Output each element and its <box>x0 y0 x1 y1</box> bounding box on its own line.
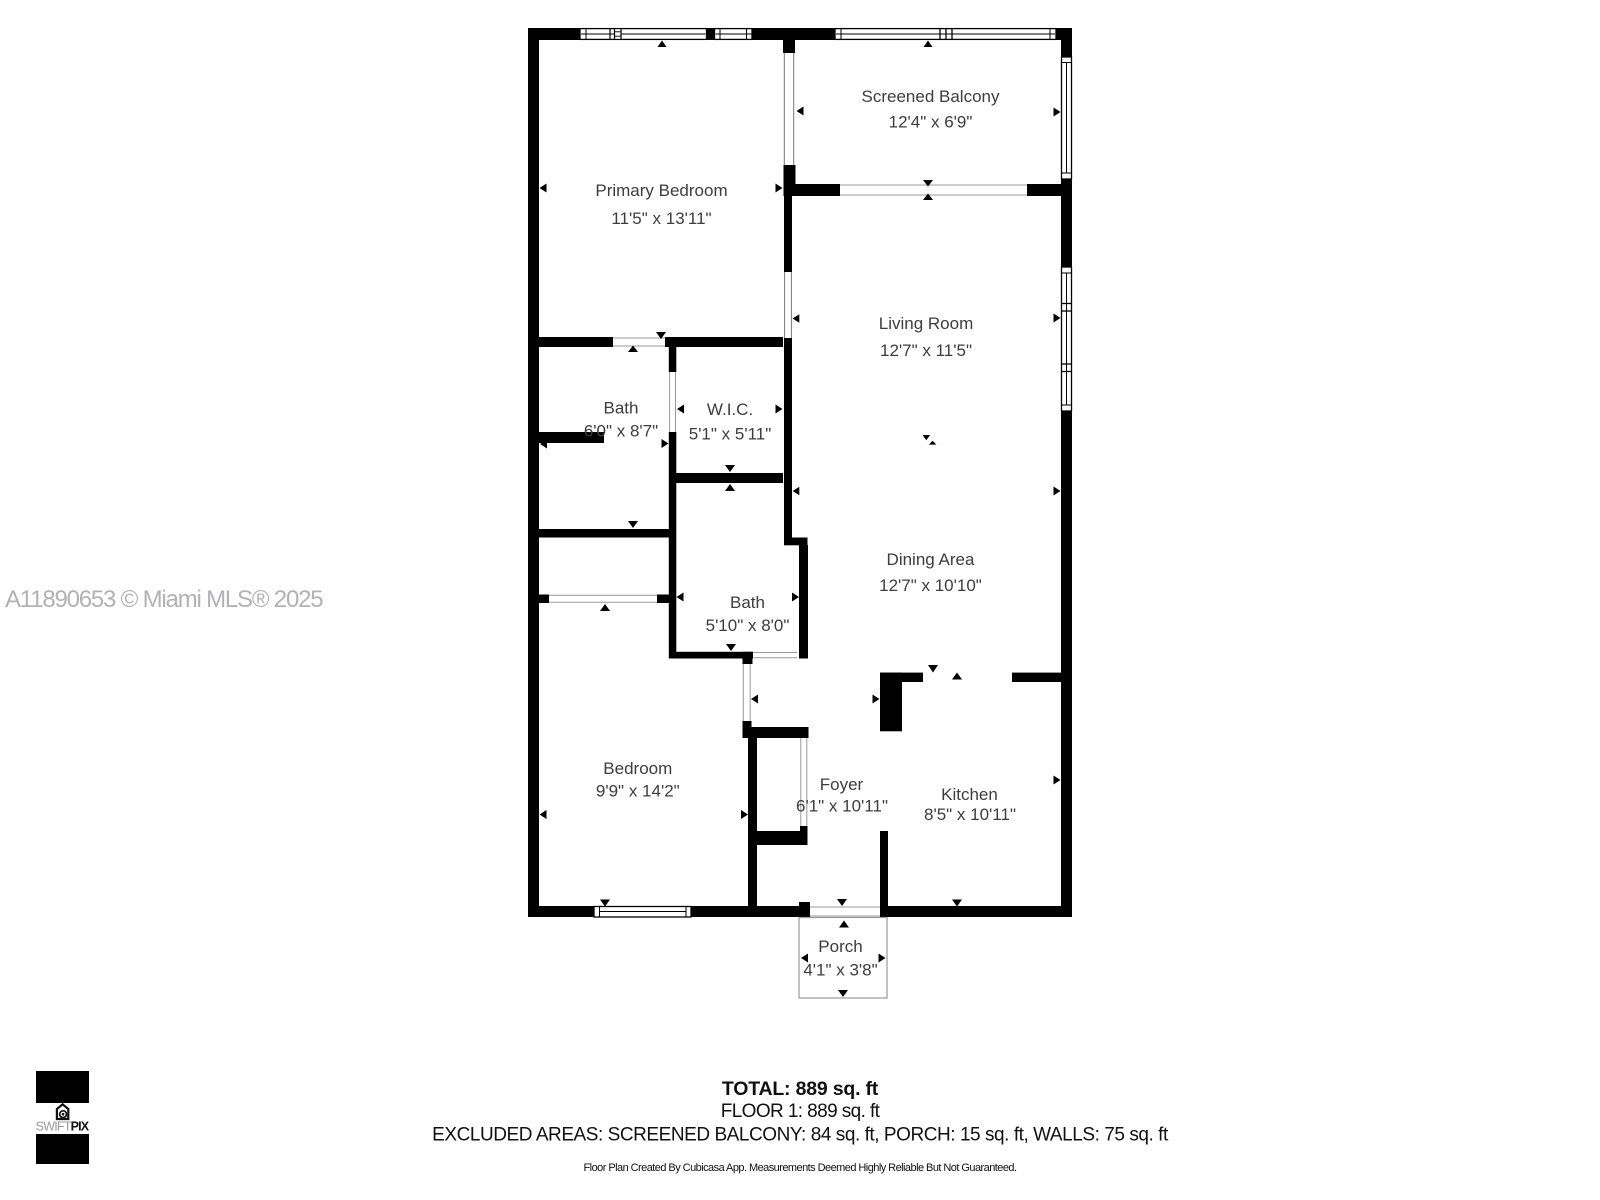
svg-text:5'1" x 5'11": 5'1" x 5'11" <box>689 425 772 444</box>
svg-text:4'1" x 3'8": 4'1" x 3'8" <box>803 961 877 980</box>
svg-text:FLOOR 1: 889 sq. ft: FLOOR 1: 889 sq. ft <box>721 1101 881 1122</box>
svg-text:6'0" x 8'7": 6'0" x 8'7" <box>584 422 658 441</box>
svg-text:5'10" x 8'0": 5'10" x 8'0" <box>706 616 790 635</box>
svg-text:12'4" x 6'9": 12'4" x 6'9" <box>889 113 973 132</box>
svg-text:12'7" x 11'5": 12'7" x 11'5" <box>880 341 972 360</box>
svg-text:Screened Balcony: Screened Balcony <box>862 87 1000 106</box>
svg-text:12'7" x 10'10": 12'7" x 10'10" <box>879 576 982 595</box>
svg-text:Primary Bedroom: Primary Bedroom <box>595 181 727 200</box>
svg-text:Bath: Bath <box>604 399 639 418</box>
svg-text:Kitchen: Kitchen <box>941 785 998 804</box>
svg-text:Floor Plan Created By Cubicasa: Floor Plan Created By Cubicasa App. Meas… <box>584 1162 1017 1174</box>
svg-text:9'9" x 14'2": 9'9" x 14'2" <box>596 782 680 801</box>
svg-text:11'5" x 13'11": 11'5" x 13'11" <box>611 209 711 228</box>
svg-text:Foyer: Foyer <box>820 775 864 794</box>
svg-text:Bedroom: Bedroom <box>603 759 672 778</box>
svg-text:A11890653 © Miami MLS® 2025: A11890653 © Miami MLS® 2025 <box>5 586 323 613</box>
svg-text:EXCLUDED AREAS: SCREENED BALCO: EXCLUDED AREAS: SCREENED BALCONY: 84 sq.… <box>432 1125 1169 1146</box>
svg-text:Living Room: Living Room <box>879 314 974 333</box>
svg-text:W.I.C.: W.I.C. <box>707 400 753 419</box>
svg-text:Bath: Bath <box>730 593 765 612</box>
svg-text:TOTAL: 889 sq. ft: TOTAL: 889 sq. ft <box>722 1078 879 1100</box>
svg-text:8'5" x 10'11": 8'5" x 10'11" <box>924 805 1016 824</box>
svg-text:6'1" x 10'11": 6'1" x 10'11" <box>796 797 888 816</box>
svg-text:Porch: Porch <box>818 937 862 956</box>
svg-text:Dining Area: Dining Area <box>887 550 975 569</box>
svg-text:SWIFTPIX: SWIFTPIX <box>36 1120 90 1134</box>
